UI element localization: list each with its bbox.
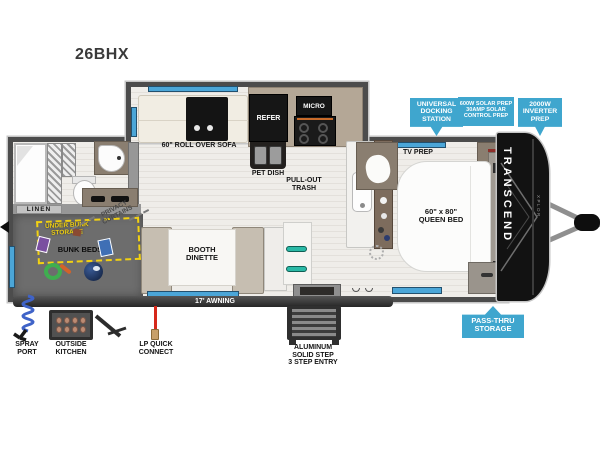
outside-kitchen-bracket <box>94 308 128 342</box>
range-stove <box>294 116 336 146</box>
toy-block <box>73 228 82 236</box>
bath-sink <box>98 145 125 172</box>
micro-label: MICRO <box>303 103 325 110</box>
front-cap-brand: TRANSCEND <box>501 147 513 287</box>
lp-connector <box>151 329 159 340</box>
bath-door-accordion <box>47 143 62 204</box>
spray-port-label: SPRAY PORT <box>4 341 50 356</box>
pull-out-trash-label: PULL-OUT TRASH <box>282 177 326 192</box>
callout-pass-thru-storage: PASS-THRU STORAGE <box>462 306 524 338</box>
window-bedroom-bottom <box>392 287 442 294</box>
lp-line <box>154 306 157 330</box>
front-cap: TRANSCEND XPLOR <box>497 133 549 301</box>
outside-kitchen-label: OUTSIDE KITCHEN <box>42 341 100 356</box>
callout-universal-docking: UNIVERSAL DOCKING STATION <box>410 98 463 136</box>
entry-step-label: ALUMINUM SOLID STEP 3 STEP ENTRY <box>278 344 348 367</box>
queen-bed-label: 60" x 80" QUEEN BED <box>411 208 471 225</box>
tv-prep-label: TV PREP <box>398 149 438 157</box>
window-slideout-left <box>131 107 137 137</box>
awning-label: 17' AWNING <box>178 298 252 306</box>
window-rear-left <box>9 246 15 288</box>
model-title: 26BHX <box>62 46 142 64</box>
callout-inverter-prep: 2000W INVERTER PREP <box>518 98 562 136</box>
bath-door-accordion-2 <box>62 143 76 177</box>
outside-kitchen-griddle <box>49 310 93 340</box>
lp-quick-connect-label: LP QUICK CONNECT <box>127 341 185 356</box>
entry-door-panel <box>283 222 312 285</box>
window-bedroom-top <box>394 142 446 148</box>
rear-marker-arrow <box>0 221 9 233</box>
sofa-flip-table <box>186 97 228 141</box>
microwave: MICRO <box>296 96 332 116</box>
grab-handle-2 <box>286 266 307 272</box>
grab-handle-1 <box>286 246 307 252</box>
entry-steps <box>287 306 341 340</box>
bedroom-wardrobe-left <box>356 142 398 190</box>
under-bunk-storage-label: UNDER BUNK STORAGE <box>40 221 95 238</box>
toy-ball <box>84 262 103 281</box>
floorplan-canvas: 26BHX 60" ROLL OVER SOFA REFER MICRO <box>0 0 600 450</box>
shower <box>14 143 47 204</box>
sofa-label: 60" ROLL OVER SOFA <box>148 142 250 150</box>
dinette-bench-right <box>232 227 264 294</box>
pet-dish-drawer <box>250 142 286 169</box>
front-cap-sub-brand: XPLOR <box>536 195 541 245</box>
callout-solar-prep: 600W SOLAR PREP 30AMP SOLAR CONTROL PREP <box>458 97 514 126</box>
coiled-hose <box>369 245 384 260</box>
booth-dinette-label: BOOTH DINETTE <box>177 246 227 263</box>
refrigerator: REFER <box>249 94 288 142</box>
window-slideout-top <box>148 86 238 92</box>
linen-label: LINEN <box>16 206 62 213</box>
refer-label: REFER <box>257 115 281 122</box>
spray-port-hose <box>12 294 46 342</box>
griddle-burners <box>52 313 90 337</box>
